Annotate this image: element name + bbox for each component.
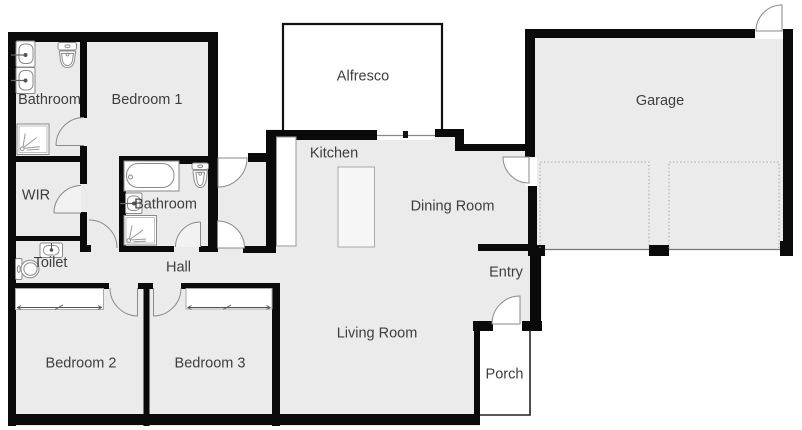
svg-text:Bathroom: Bathroom [134, 197, 197, 213]
svg-text:Porch: Porch [486, 367, 524, 383]
svg-text:Bedroom 1: Bedroom 1 [112, 92, 183, 108]
svg-text:Alfresco: Alfresco [337, 69, 389, 85]
svg-text:WIR: WIR [22, 188, 50, 204]
svg-text:Hall: Hall [166, 260, 191, 276]
svg-text:Kitchen: Kitchen [310, 146, 358, 162]
svg-text:Living Room: Living Room [337, 326, 418, 342]
svg-text:Toilet: Toilet [34, 255, 68, 271]
svg-text:Bedroom 2: Bedroom 2 [46, 356, 117, 372]
svg-text:Bedroom 3: Bedroom 3 [175, 356, 246, 372]
svg-text:Entry: Entry [489, 265, 524, 281]
svg-text:Dining Room: Dining Room [411, 199, 495, 215]
svg-text:Garage: Garage [636, 93, 684, 109]
svg-text:Bathroom: Bathroom [18, 92, 81, 108]
